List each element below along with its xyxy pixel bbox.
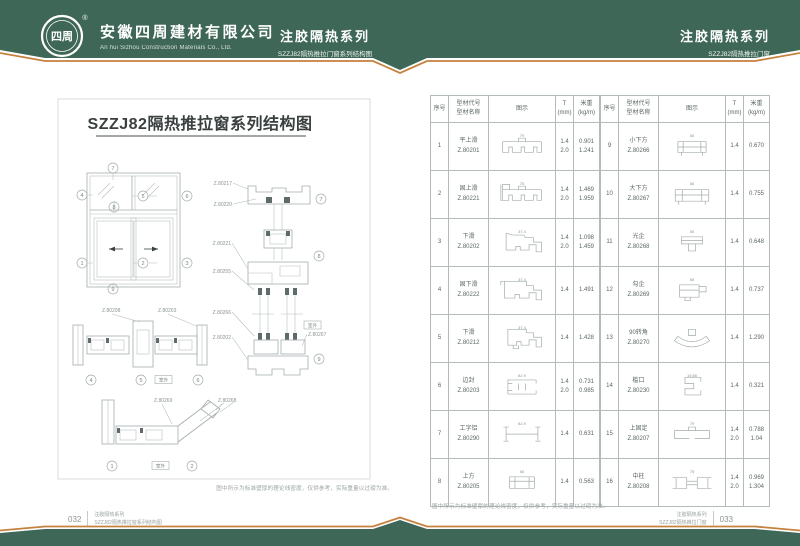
- vertical-section-callouts: 7 8 9: [314, 194, 326, 364]
- footer-band: [0, 516, 800, 546]
- series-subtitle: SZZJ82隔热推拉门窗系列结构图: [240, 48, 410, 58]
- table-row: 5 下滑Z.80212 37.4 1.41.428: [431, 315, 600, 363]
- table-row: 3 下滑Z.80202 37.4 1.4 2.01.098 1.459: [431, 219, 600, 267]
- svg-text:66: 66: [690, 180, 695, 185]
- svg-text:58: 58: [690, 276, 695, 281]
- svg-text:9: 9: [111, 287, 114, 293]
- horizontal-section-1: Z.80208 Z.80203 4 5 室外 6: [73, 308, 207, 385]
- logo-text: 四周: [51, 30, 73, 43]
- svg-text:Z.80267: Z.80267: [308, 332, 327, 338]
- svg-text:4: 4: [80, 193, 83, 199]
- profile-diagram: 50: [662, 228, 722, 258]
- table-row: 2 固上滑Z.80221 70 1.4 2.01.469 1.959: [431, 171, 600, 219]
- table-row: 15 上固定Z.80207 79 1.4 2.00.788 1.04: [601, 411, 770, 459]
- profile-diagram: 82.9: [492, 420, 552, 450]
- company-logo-icon: 四周 ®: [36, 8, 92, 62]
- svg-text:Z.80268: Z.80268: [218, 398, 237, 404]
- svg-text:82.9: 82.9: [518, 372, 527, 377]
- svg-text:6: 6: [185, 194, 188, 200]
- col-no: 序号: [431, 96, 449, 123]
- svg-text:4: 4: [89, 378, 92, 384]
- svg-text:1: 1: [80, 261, 83, 267]
- svg-text:3: 3: [185, 261, 188, 267]
- svg-text:9: 9: [317, 357, 320, 363]
- table-row: 9 小下方Z.80266 60 1.40.670: [601, 123, 770, 171]
- table-row: 4 固下滑Z.80222 37.4 1.41.491: [431, 267, 600, 315]
- col-t: T (mm): [556, 96, 574, 123]
- catalog-spread: 四周 ® 安徽四周建材有限公司 An hui Sizhou Constructi…: [0, 0, 800, 546]
- profile-diagram: 37.4: [492, 324, 552, 354]
- profile-diagram: 70: [492, 180, 552, 210]
- profile-table-right: 序号 型材代号 型材名称 图示 T (mm) 米重 (kg/m) 9 小下方Z.…: [600, 95, 770, 507]
- svg-text:7: 7: [111, 166, 114, 172]
- table-row: 6 边封Z.80203 82.9 1.4 2.00.731 0.985: [431, 363, 600, 411]
- series-title-right: 注胶隔热系列: [680, 26, 770, 45]
- h2-callouts: 1 室外 2: [107, 461, 197, 471]
- vertical-section: Z.80217 Z.80220 Z.80221 Z.80255 Z.80266 …: [213, 181, 327, 375]
- svg-text:1: 1: [110, 464, 113, 470]
- svg-text:Z.80202: Z.80202: [213, 335, 232, 341]
- profile-diagram: 75: [662, 468, 722, 498]
- right-page-note: 图中所示为标准壁厚的理论线密度，仅供参考，实际重量以过磅为准。: [432, 502, 609, 510]
- svg-text:60: 60: [690, 132, 695, 137]
- svg-text:37.4: 37.4: [518, 228, 527, 233]
- table-row: 7 工字铝Z.80290 82.9 1.40.631: [431, 411, 600, 459]
- table-row: 11 光企Z.80268 50 1.40.648: [601, 219, 770, 267]
- profile-table-left: 序号 型材代号 型材名称 图示 T (mm) 米重 (kg/m) 1 平上滑Z.…: [430, 95, 600, 507]
- svg-text:8: 8: [317, 254, 320, 260]
- svg-text:8: 8: [112, 205, 115, 211]
- drawing-border: [58, 99, 370, 479]
- table-row: 1 平上滑Z.80201 79 1.4 2.00.901 1.241: [431, 123, 600, 171]
- svg-text:Z.80266: Z.80266: [213, 310, 232, 316]
- left-page-note: 图中所示为标准壁厚的理论线密度，仅供参考，实际重量以过磅为准。: [216, 484, 393, 492]
- header-series-center: 注胶隔热系列 SZZJ82隔热推拉门窗系列结构图: [240, 26, 410, 58]
- svg-text:Z.80221: Z.80221: [213, 241, 232, 247]
- col-code-name: 型材代号 型材名称: [449, 96, 489, 123]
- table-row: 12 勾企Z.80269 58 1.40.737: [601, 267, 770, 315]
- lower-sash-glazing: [252, 288, 303, 340]
- profile-diagram: 19.85: [662, 372, 722, 402]
- svg-text:70: 70: [520, 180, 525, 185]
- svg-text:Z.80220: Z.80220: [214, 202, 233, 208]
- col-diagram: 图示: [489, 96, 556, 123]
- table-row: 8 上方Z.80205 60 1.40.563: [431, 459, 600, 507]
- profile-diagram: 60: [492, 468, 552, 498]
- table-row: 16 中柱Z.80208 75 1.4 2.00.969 1.304: [601, 459, 770, 507]
- svg-text:Z.80203: Z.80203: [158, 308, 177, 314]
- svg-text:Z.80255: Z.80255: [213, 269, 232, 275]
- svg-text:5: 5: [139, 378, 142, 384]
- sash-direction-arrows: [109, 247, 158, 252]
- h1-callouts: 4 5 室外 6: [86, 375, 203, 385]
- svg-text:2: 2: [190, 464, 193, 470]
- profile-diagram: 82.9: [492, 372, 552, 402]
- profile-diagram: 79: [492, 132, 552, 162]
- table-header-row: 序号 型材代号 型材名称 图示 T (mm) 米重 (kg/m): [601, 96, 770, 123]
- svg-text:室外: 室外: [159, 377, 169, 384]
- svg-text:79: 79: [690, 420, 695, 425]
- svg-text:75: 75: [690, 468, 695, 473]
- col-weight: 米重 (kg/m): [574, 96, 600, 123]
- svg-text:60: 60: [520, 468, 525, 473]
- svg-text:79: 79: [520, 132, 525, 137]
- table-row: 14 槛口Z.80230 19.85 1.40.321: [601, 363, 770, 411]
- series-title: 注胶隔热系列: [240, 26, 410, 45]
- svg-text:Z.80269: Z.80269: [154, 398, 173, 404]
- page-title: SZZJ82隔热推拉窗系列结构图: [88, 114, 313, 133]
- profile-diagram: 58: [662, 276, 722, 306]
- svg-text:5: 5: [141, 194, 144, 200]
- series-subtitle-right: SZZJ82隔热推拉门窗: [680, 48, 770, 58]
- svg-text:7: 7: [319, 197, 322, 203]
- svg-text:6: 6: [196, 378, 199, 384]
- profile-diagram: [662, 324, 722, 354]
- svg-text:室外: 室外: [156, 463, 166, 470]
- profile-diagram: 37.4: [492, 276, 552, 306]
- profile-diagram: 66: [662, 180, 722, 210]
- svg-text:Z.80208: Z.80208: [102, 308, 121, 314]
- table-header-row: 序号 型材代号 型材名称 图示 T (mm) 米重 (kg/m): [431, 96, 600, 123]
- table-row: 13 90转角Z.80270 1.41.290: [601, 315, 770, 363]
- profile-diagram: 37.4: [492, 228, 552, 258]
- svg-text:82.9: 82.9: [518, 420, 527, 425]
- svg-text:50: 50: [690, 228, 695, 233]
- table-row: 10 大下方Z.80267 66 1.40.755: [601, 171, 770, 219]
- profile-diagram: 60: [662, 132, 722, 162]
- svg-text:2: 2: [141, 261, 144, 267]
- window-elevation: 7 4 5 6 8 1 2 3 9: [77, 163, 192, 294]
- svg-text:室外: 室外: [308, 322, 318, 329]
- structure-diagram: SZZJ82隔热推拉窗系列结构图 7: [50, 90, 400, 490]
- header-series-right: 注胶隔热系列 SZZJ82隔热推拉门窗: [680, 26, 770, 58]
- registered-mark: ®: [82, 14, 88, 22]
- footer-green-shape: [0, 520, 800, 546]
- horizontal-section-2: Z.80269 Z.80268 1 室外 2: [102, 398, 237, 471]
- profile-diagram: 79: [662, 420, 722, 450]
- svg-text:Z.80217: Z.80217: [214, 181, 233, 187]
